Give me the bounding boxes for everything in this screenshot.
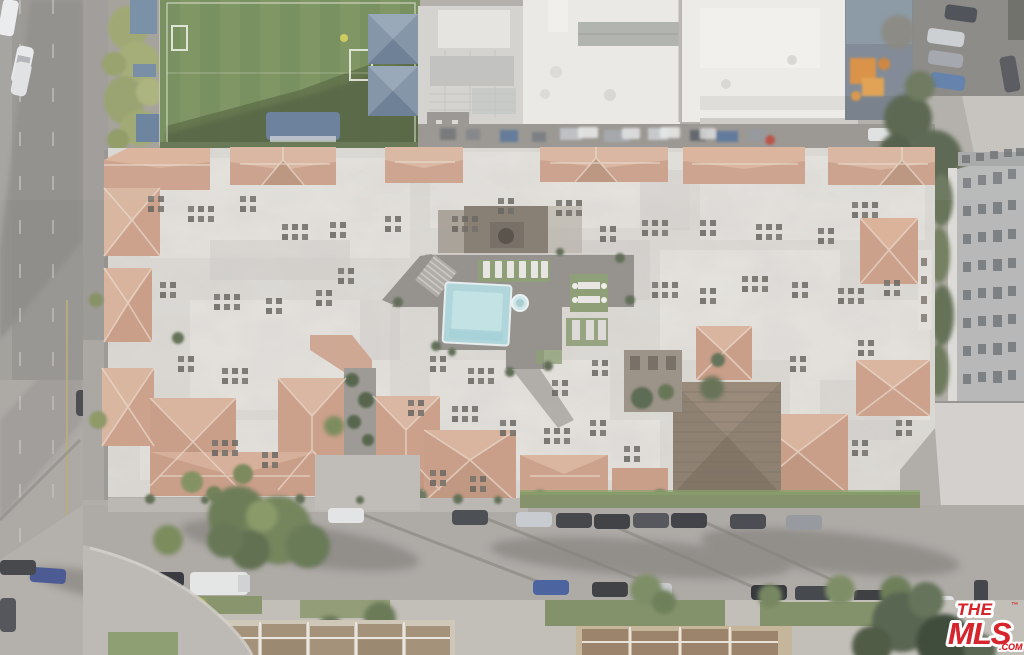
svg-text:.COM: .COM: [999, 642, 1023, 652]
svg-text:™: ™: [1011, 602, 1018, 609]
